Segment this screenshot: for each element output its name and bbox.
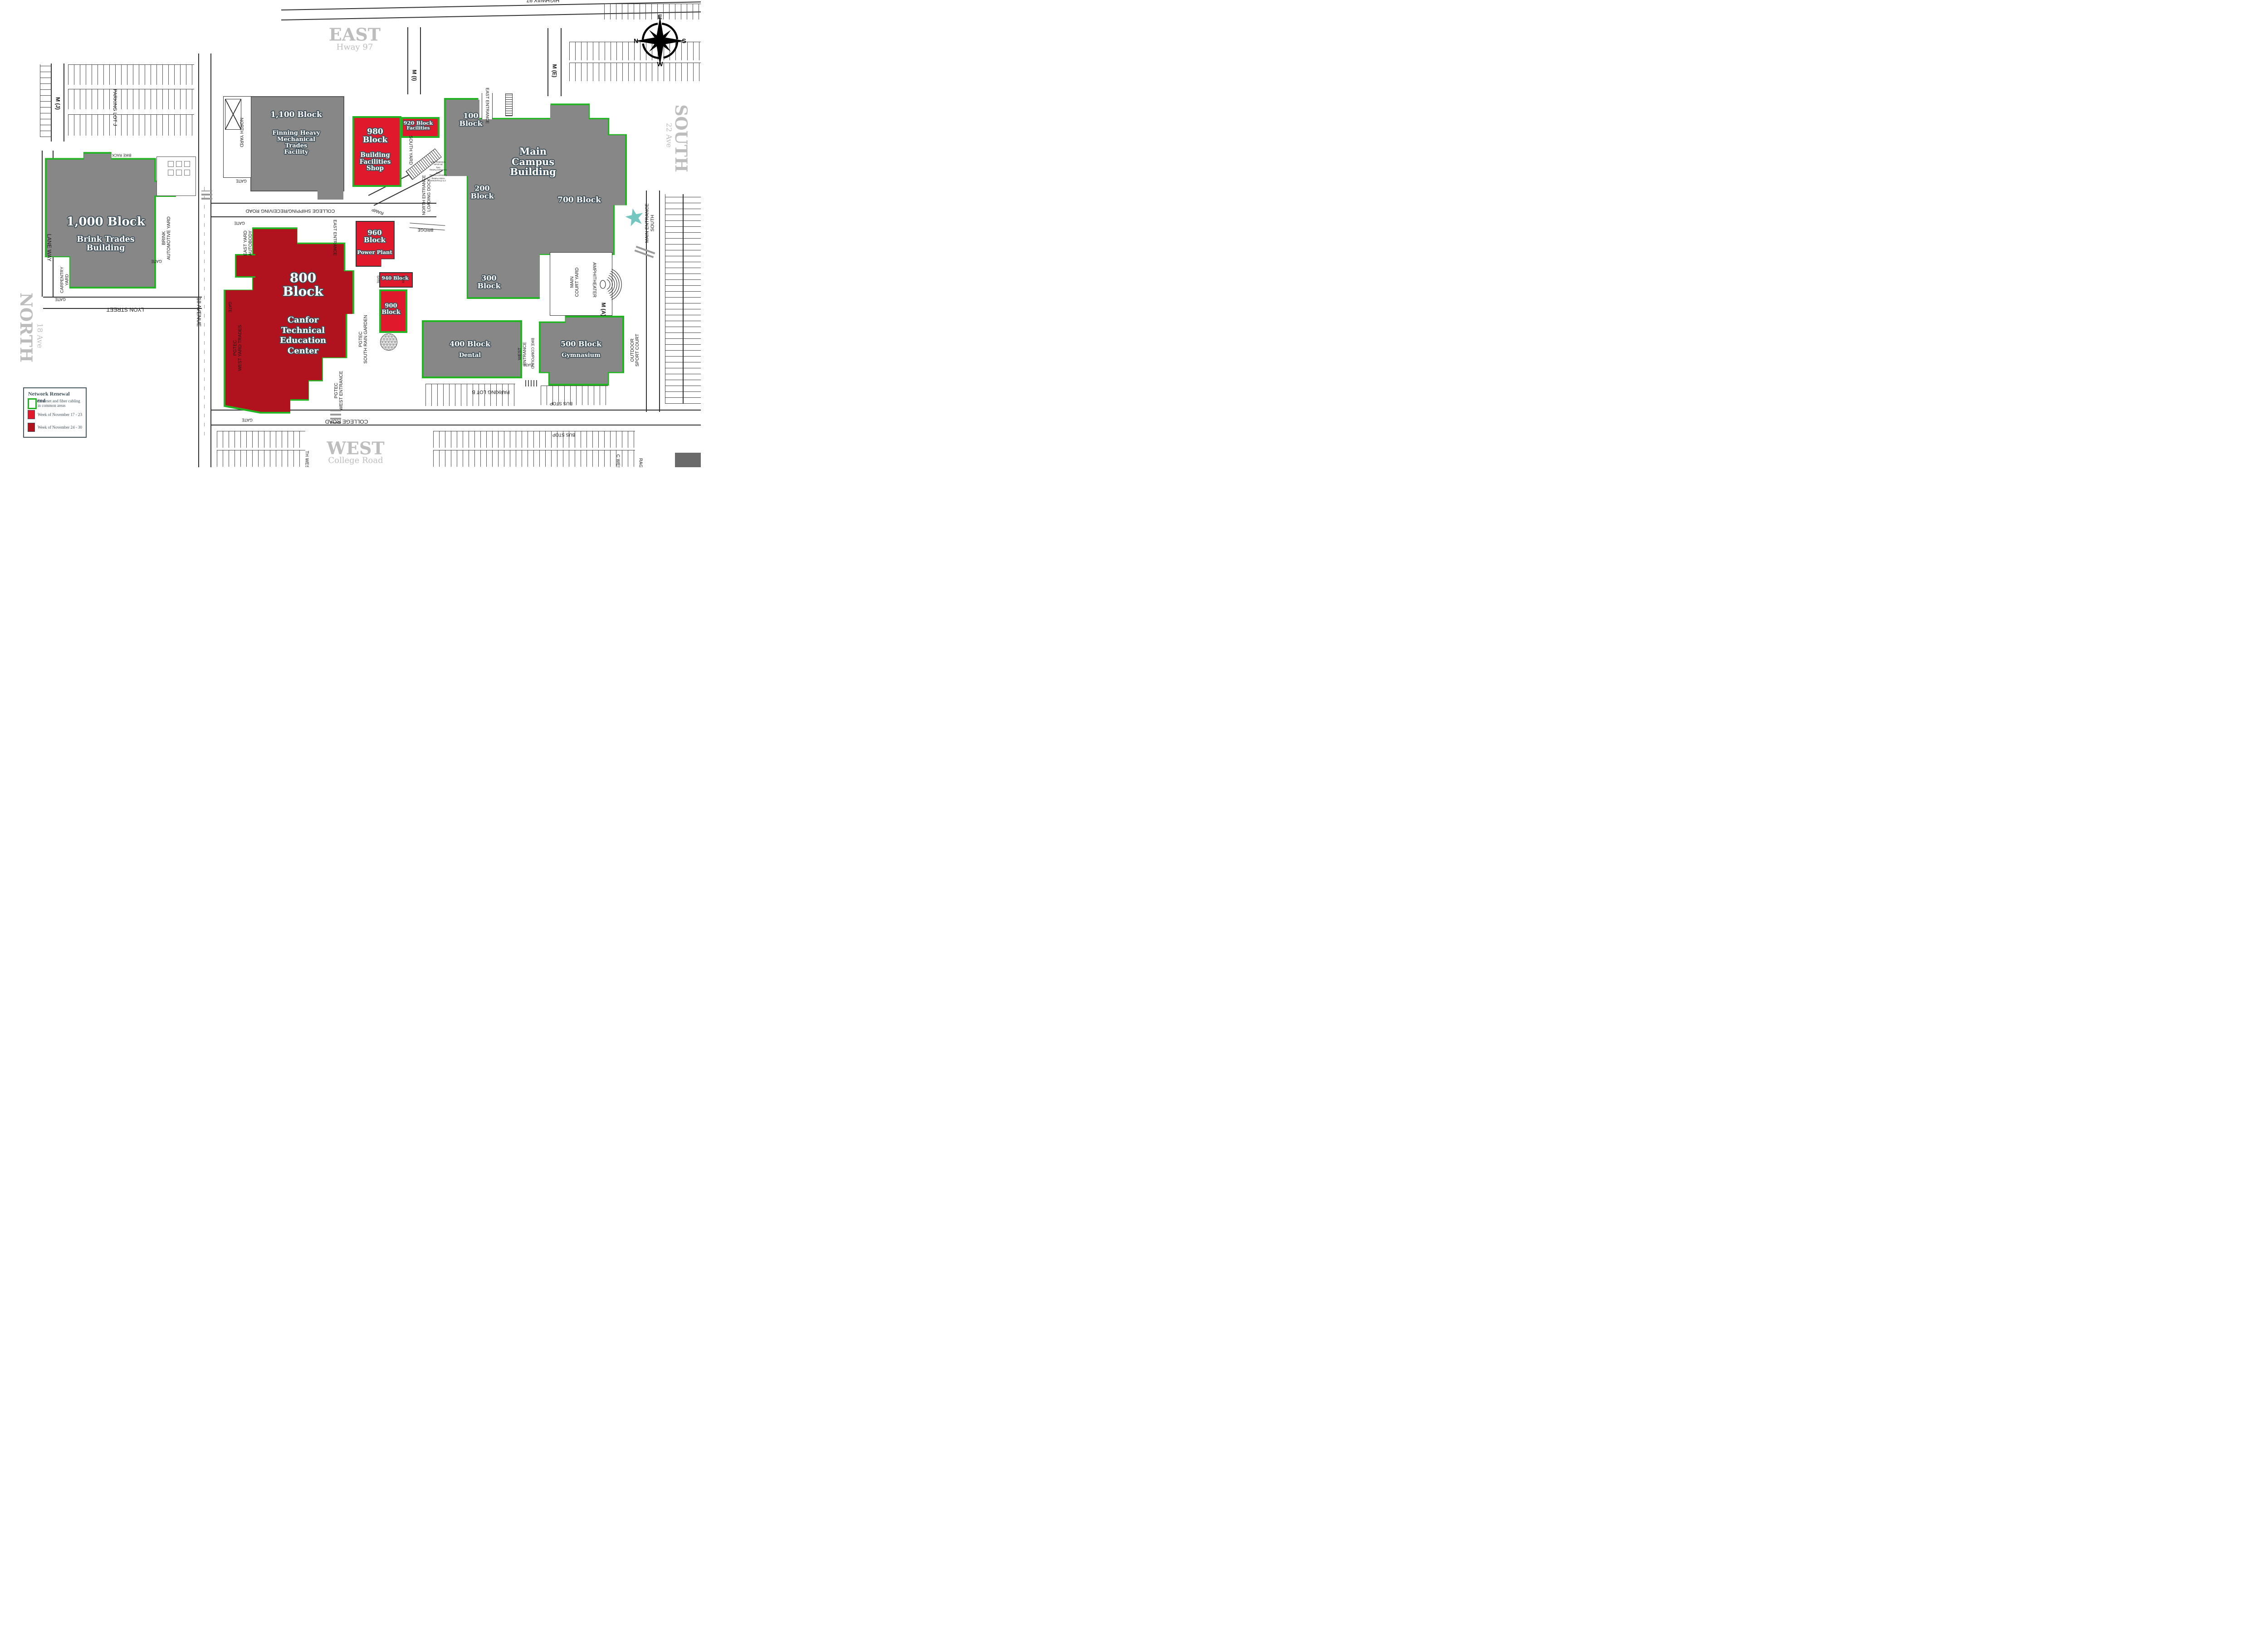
- label-pgtec-west-entrance: PGTEC WEST ENTRANCE: [334, 371, 344, 411]
- label-m-a: M (A): [600, 303, 606, 316]
- legend-item-label: Week of November 24 - 30: [38, 425, 82, 430]
- building-1000-desc: Brink Trades Building: [77, 235, 134, 253]
- label-bus-stop: BUS STOP: [552, 432, 575, 437]
- building-700-label: 700 Block: [557, 196, 601, 204]
- 18-avenue-road-edge: [210, 54, 211, 467]
- annex-unit: [184, 170, 190, 176]
- shipping-road-edge: [211, 203, 436, 204]
- building-200-label: 200 Block: [470, 185, 494, 200]
- building-400-block: [422, 320, 522, 378]
- label-lyon-street: LYON STREET: [107, 306, 144, 312]
- building-920-label: 920 Block: [404, 120, 433, 126]
- m-e-road-edge: [547, 28, 548, 96]
- label-north-yard: NORTH YARD: [239, 117, 244, 147]
- label-main-entrance-south: MAIN ENTRANCE SOUTH: [645, 204, 655, 243]
- west-entrance-stairs: [525, 380, 537, 386]
- building-900-label: 900 Block: [381, 303, 401, 316]
- storage-building: [675, 453, 701, 467]
- building-400-label: 400 Block: [450, 340, 490, 347]
- building-500-desc: Gymnasium: [562, 352, 601, 359]
- label-gate: GATE: [55, 297, 66, 302]
- building-800-desc: Canfor Technical Education Center: [280, 315, 326, 356]
- label-outdoor-sport-court: OUTDOOR SPORT COURT: [630, 334, 640, 367]
- 18-avenue-centerline: [204, 181, 205, 435]
- label-highway-97-cut: HIGHWAY 97: [527, 0, 559, 3]
- building-940-label: 940 Block: [381, 276, 408, 281]
- building-800-label: 800 Block: [283, 271, 323, 298]
- label-college-shipping-road: COLLEGE SHIPPING/RECEIVING ROAD: [246, 208, 335, 213]
- svg-text:S: S: [682, 37, 686, 44]
- label-contractor-parking: Contractor Parking Only: [430, 172, 447, 176]
- label-unloading-zone: 30 minute Unloading Zone: [431, 161, 445, 166]
- region-north: NORTH: [16, 293, 35, 362]
- label-bus-stop: BUS STOP: [550, 401, 572, 406]
- building-960-label: 960 Block: [364, 229, 386, 244]
- parking-row-line: [683, 194, 684, 404]
- parking-lot-j-stalls: [68, 89, 194, 109]
- stairs: [505, 93, 513, 116]
- parking-stalls: [40, 64, 51, 137]
- legend-swatch-red: [28, 410, 35, 419]
- label-lane-way: LANE WAY: [46, 234, 52, 262]
- building-400-desc: Dental: [459, 352, 481, 359]
- parking-stalls-west-lot: [433, 431, 635, 448]
- building-1100-label: 1,100 Block: [270, 111, 322, 119]
- label-college-road: COLLEGE ROAD: [325, 418, 368, 424]
- label-main-court-yard: MAIN COURT YARD: [570, 268, 580, 297]
- building-980-label: 980 Block: [363, 128, 387, 145]
- building-960-desc: Power Plant: [357, 249, 392, 255]
- label-gate: GATE: [234, 221, 245, 225]
- m-i-road-edge: [407, 27, 408, 94]
- campus-map: 1,100 Block Finning Heavy Mechanical Tra…: [0, 0, 701, 467]
- crosswalk: [201, 191, 212, 200]
- label-amphitheater: AMPHITHEATER: [591, 262, 596, 298]
- label-visitor-parking: 1 hr Procurement Visitor Parking: [430, 177, 446, 182]
- building-100-label: 100 Block: [459, 112, 482, 128]
- label-bike-rack: BIKE RACK: [112, 153, 132, 157]
- annex-unit: [176, 161, 182, 167]
- building-980-desc: Building Facilities Shop: [360, 152, 391, 172]
- label-contractor-parking: Contractor Parking Only: [430, 166, 447, 171]
- main-campus-label: Main Campus Building: [510, 147, 556, 177]
- building-500-block: [541, 318, 622, 384]
- network-renewal-legend: Network Renewal Legend Ethernet and fibe…: [23, 387, 87, 438]
- compass-rose-icon: E S W N: [633, 13, 687, 66]
- rain-garden-dome: [380, 333, 397, 351]
- label-bridge: BRIDGE: [418, 228, 434, 232]
- region-east-sub: Hway 97: [337, 43, 373, 52]
- m-e-road-edge: [561, 28, 562, 96]
- amphitheater-seating: [596, 265, 637, 306]
- label-m-j: M (J): [54, 97, 60, 110]
- svg-text:W: W: [657, 60, 663, 68]
- label-east-yard-autobody: EAST YARD AUTOBODY: [243, 230, 253, 256]
- label-gate: GATE: [401, 275, 404, 283]
- main-entrance-star-icon: [625, 208, 644, 227]
- svg-text:N: N: [634, 37, 638, 44]
- label-south-yard: SOUTH YARD: [408, 136, 413, 165]
- legend-item-label: Ethernet and fiber cabling in common are…: [38, 399, 80, 408]
- parking-lot-j-stalls: [68, 64, 194, 85]
- legend-swatch-dark-red: [28, 423, 35, 432]
- legend-swatch-green-outline: [28, 398, 37, 409]
- label-gate: GATE: [228, 302, 232, 313]
- label-m-i: M (I): [411, 70, 417, 81]
- label-gate: GATE: [376, 275, 379, 283]
- building-1100-desc: Finning Heavy Mechanical Trades Facility: [272, 130, 320, 156]
- building-300-label: 300 Block: [477, 274, 500, 290]
- building-800-west-tab: [235, 254, 255, 278]
- label-gate: GATE: [151, 259, 162, 264]
- building-500-label: 500 Block: [561, 340, 601, 347]
- label-gate: GATE: [236, 179, 247, 183]
- annex-unit: [168, 170, 174, 176]
- label-18-avenue: 18 AVENUE: [196, 298, 201, 327]
- legend-item-label: Week of November 17 - 23: [38, 413, 82, 417]
- lyon-street-road-edge: [43, 297, 202, 298]
- label-east-entrance-campus: EAST ENTRANCE: [484, 88, 489, 124]
- label-parking-lot-b: PARKING LOT B: [472, 389, 509, 395]
- annex-unit: [176, 170, 182, 176]
- label-brink-automotive-yard: BRINK AUTOMOTIVE YARD: [161, 216, 171, 260]
- label-gate: GATE: [242, 418, 253, 422]
- lane-way-road-edge: [42, 151, 43, 297]
- main-entrance-south-road-edge: [659, 191, 660, 412]
- label-east-entrance-800: EAST ENTRANCE: [332, 220, 337, 256]
- parking-lot-j-stalls: [68, 114, 194, 136]
- label-ramp: RAMP: [371, 206, 384, 215]
- region-south: SOUTH: [671, 104, 690, 172]
- label-carpentry-yard: CARPENTRY YARD: [60, 267, 69, 293]
- svg-text:E: E: [658, 13, 662, 20]
- shipping-road-edge: [211, 216, 436, 217]
- label-cut-rage: RAGE: [638, 458, 643, 467]
- label-m-e: M (E): [551, 64, 557, 77]
- label-gate: GATE: [523, 362, 533, 367]
- building-1100-dock: [318, 190, 343, 200]
- label-pgtec-west-yard: PGTEC WEST YARD TRADES: [233, 325, 243, 371]
- parking-stalls-west-lot: [433, 450, 635, 467]
- m-j-road-edge: [64, 64, 64, 142]
- region-north-sub: 18 Ave: [36, 323, 44, 348]
- parking-lot-b-stalls: [425, 384, 515, 406]
- building-1000-label: 1,000 Block: [66, 215, 145, 228]
- parking-stalls-west-lot: [217, 431, 305, 448]
- label-parking-lot-j: PARKING LOT J: [112, 89, 117, 126]
- region-south-sub: 22 Ave: [665, 123, 674, 148]
- parking-stalls-west-lot: [217, 450, 305, 467]
- building-920-desc: Facilities: [407, 127, 430, 132]
- college-road-edge: [211, 425, 701, 425]
- region-east: EAST: [329, 24, 381, 45]
- crosswalk: [635, 244, 656, 258]
- label-pgtec-rain-garden: PGTEC SOUTH RAIN GARDEN: [358, 315, 368, 363]
- 18-avenue-road-edge: [198, 54, 199, 467]
- label-cut-c-west: C WEST: [615, 455, 620, 467]
- annex-unit: [184, 161, 190, 167]
- label-cut-th-west: TH WEST: [304, 451, 309, 468]
- region-west-sub: College Road: [328, 456, 383, 465]
- m-i-road-edge: [420, 27, 421, 94]
- annex-unit: [168, 161, 174, 167]
